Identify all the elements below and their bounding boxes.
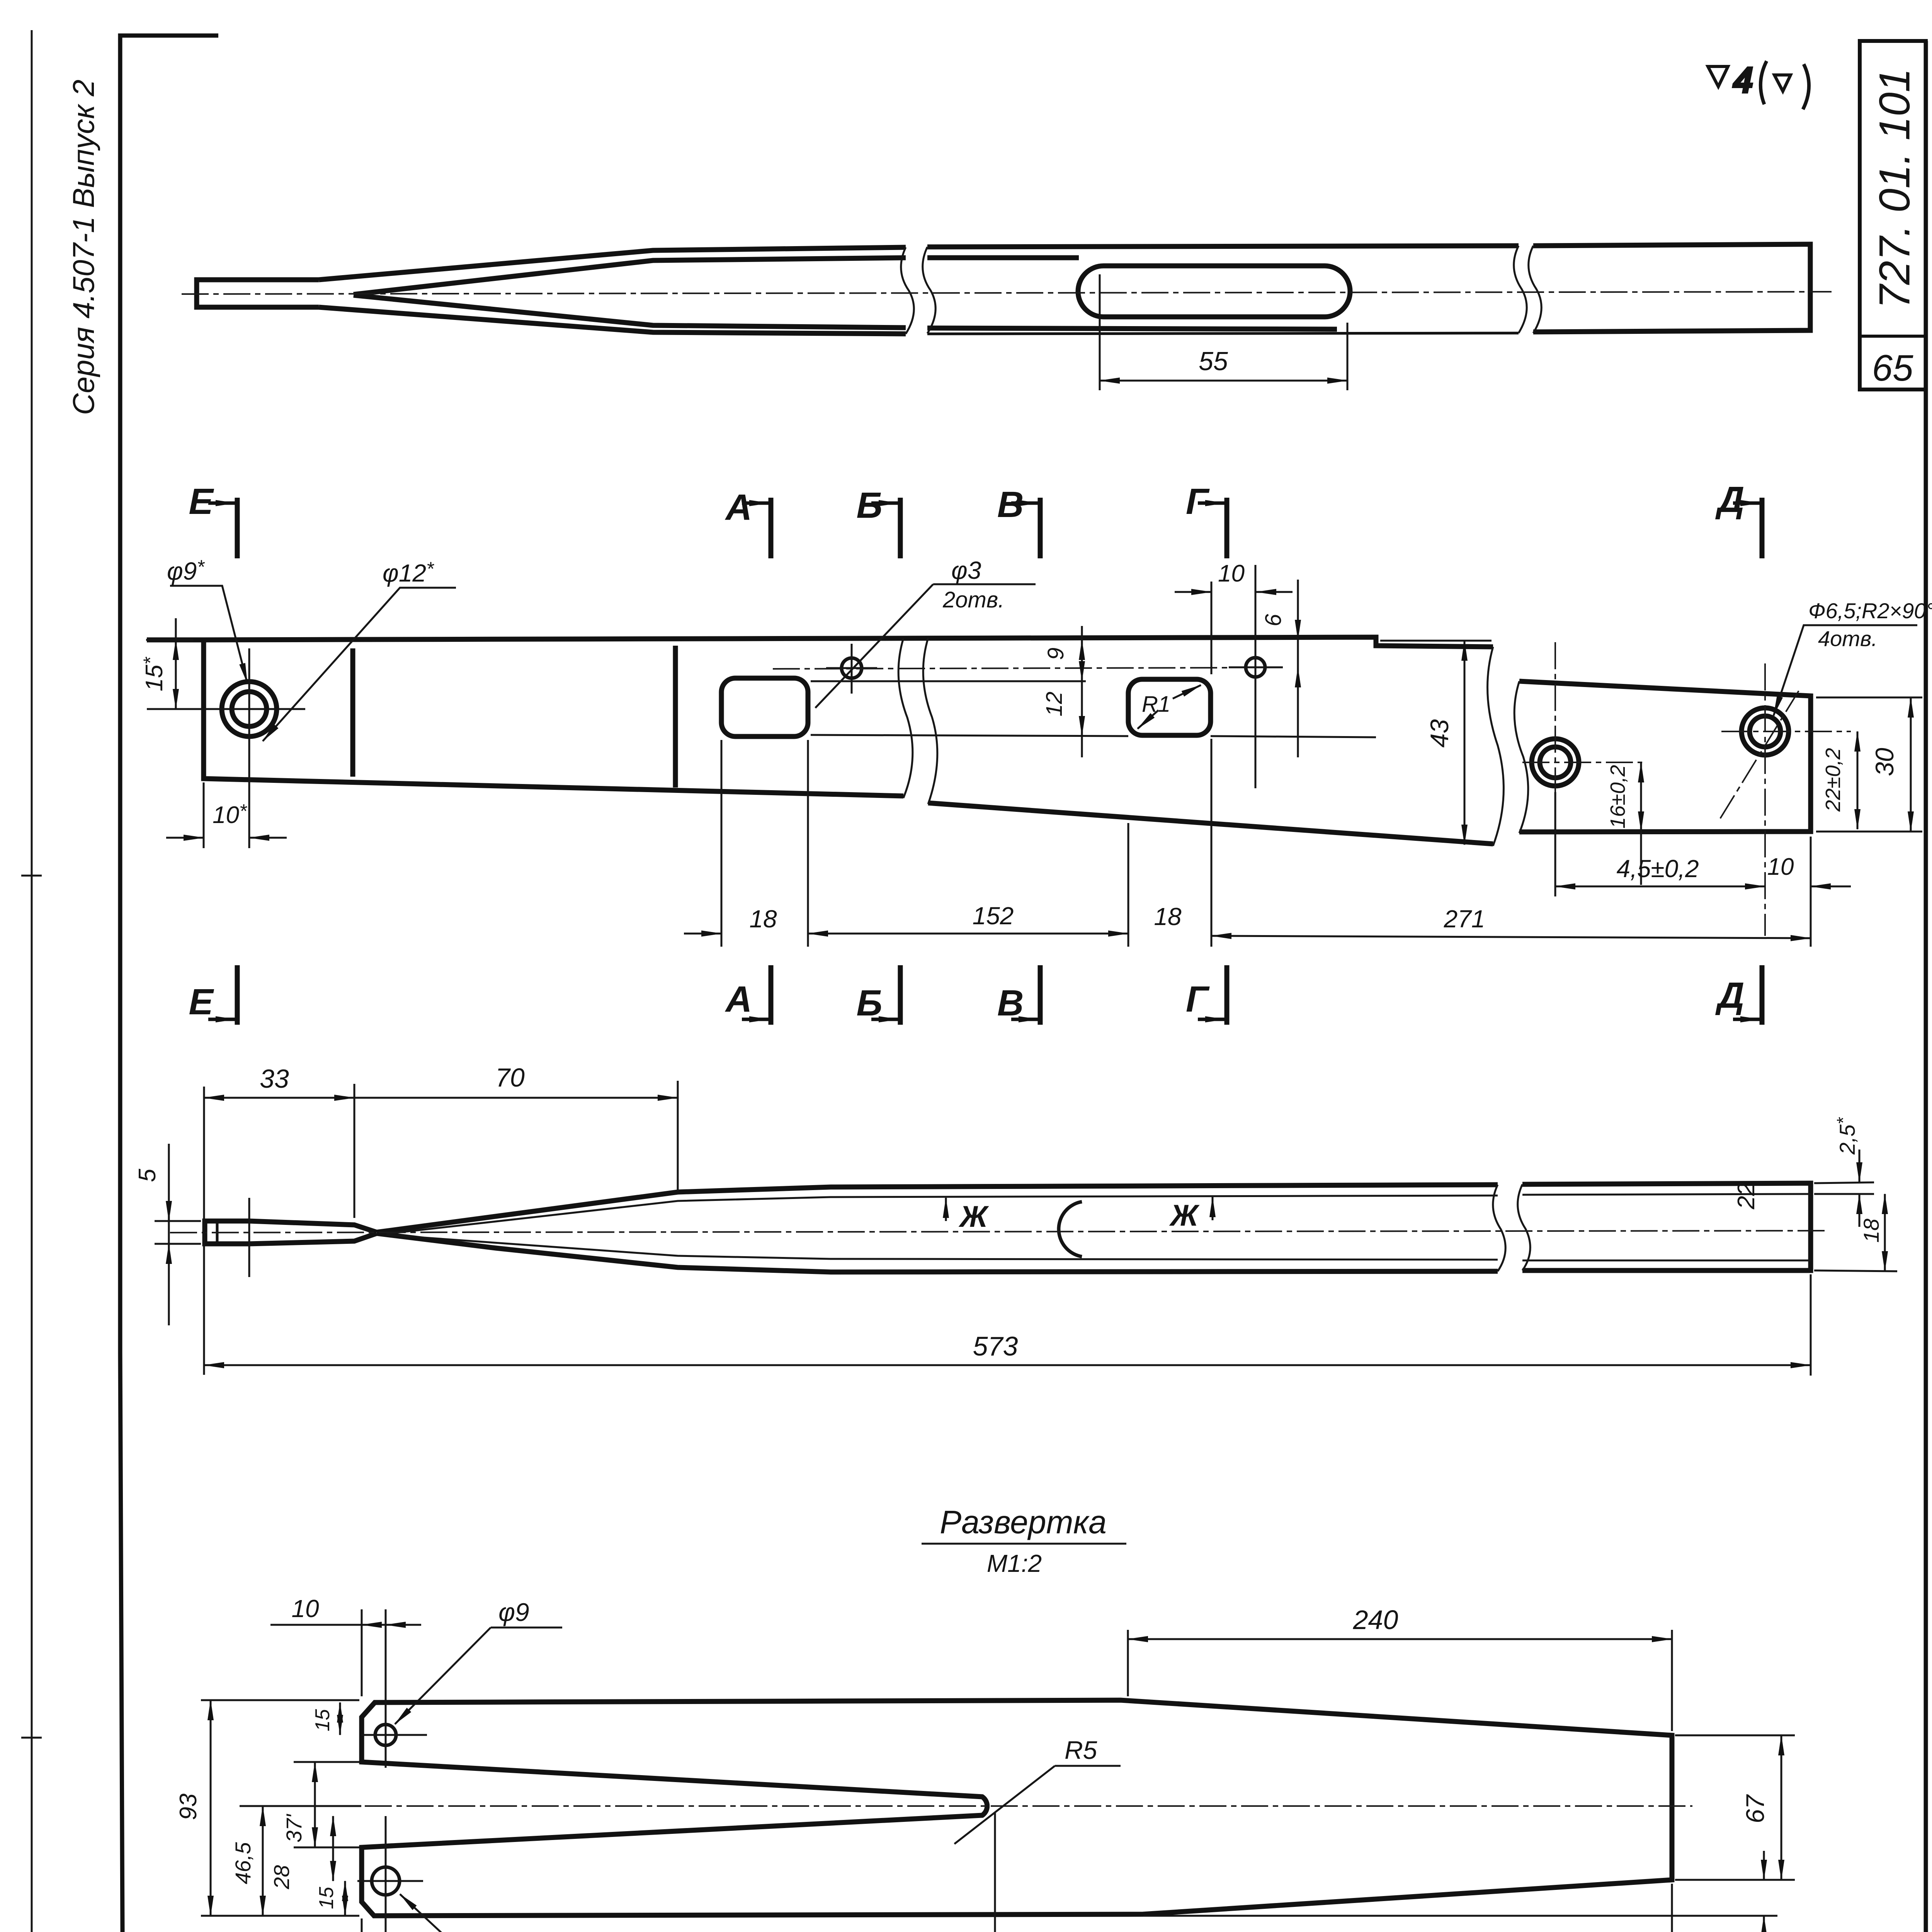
svg-text:Б: Б (856, 485, 882, 526)
svg-text:67: 67 (1741, 1794, 1769, 1823)
svg-text:15: 15 (315, 1886, 338, 1909)
svg-text:18: 18 (1154, 903, 1182, 930)
svg-text:43: 43 (1425, 719, 1454, 748)
svg-text:Е: Е (189, 981, 214, 1022)
svg-text:12: 12 (1042, 692, 1067, 717)
svg-text:Ж: Ж (958, 1199, 989, 1233)
svg-text:33: 33 (260, 1064, 289, 1094)
svg-text:φ3: φ3 (951, 556, 981, 584)
svg-text:65: 65 (1872, 347, 1913, 389)
svg-text:Серия 4.507-1 Выпуск 2: Серия 4.507-1 Выпуск 2 (66, 80, 100, 415)
svg-text:10: 10 (1218, 560, 1245, 587)
svg-text:М1:2: М1:2 (987, 1549, 1042, 1577)
svg-text:В: В (997, 983, 1024, 1024)
svg-text:70: 70 (495, 1063, 525, 1092)
svg-text:9: 9 (1043, 648, 1068, 660)
svg-text:Г: Г (1186, 979, 1210, 1020)
svg-text:28: 28 (269, 1865, 294, 1889)
svg-text:240: 240 (1353, 1605, 1398, 1635)
svg-text:30: 30 (1870, 748, 1899, 776)
svg-text:А: А (725, 979, 752, 1020)
svg-text:46,5: 46,5 (231, 1842, 255, 1884)
svg-text:18: 18 (749, 905, 777, 933)
svg-text:10: 10 (1767, 854, 1794, 880)
svg-text:Б: Б (856, 983, 882, 1024)
svg-text:В: В (997, 484, 1024, 525)
svg-text:Е: Е (189, 481, 214, 522)
svg-text:4: 4 (1733, 61, 1753, 100)
svg-text:55: 55 (1199, 347, 1228, 376)
svg-text:Г: Г (1186, 481, 1210, 522)
svg-text:2отв.: 2отв. (942, 587, 1004, 612)
svg-text:152: 152 (973, 902, 1014, 930)
svg-text:5: 5 (134, 1168, 161, 1182)
svg-text:Ж: Ж (1169, 1198, 1200, 1232)
svg-text:22±0,2: 22±0,2 (1821, 748, 1845, 812)
svg-text:Развертка: Развертка (940, 1504, 1107, 1540)
svg-text:10: 10 (291, 1595, 319, 1622)
svg-text:15: 15 (311, 1709, 334, 1731)
svg-text:18: 18 (1859, 1219, 1883, 1243)
svg-text:φ9: φ9 (498, 1598, 529, 1626)
svg-text:22: 22 (1733, 1183, 1760, 1210)
svg-text:271: 271 (1444, 905, 1485, 933)
svg-text:93: 93 (175, 1794, 202, 1820)
svg-text:4,5±0,2: 4,5±0,2 (1616, 855, 1699, 883)
svg-text:Д: Д (1715, 975, 1745, 1016)
svg-text:16±0,2: 16±0,2 (1606, 765, 1629, 829)
svg-text:R5: R5 (1065, 1736, 1097, 1764)
svg-text:6: 6 (1261, 614, 1286, 626)
svg-text:727. 01. 101: 727. 01. 101 (1871, 68, 1919, 309)
svg-text:37': 37' (282, 1813, 306, 1842)
svg-text:Д: Д (1715, 479, 1745, 520)
svg-text:4отв.: 4отв. (1818, 626, 1878, 651)
svg-text:Ф6,5;R2×90°: Ф6,5;R2×90° (1808, 599, 1932, 623)
svg-text:А: А (725, 487, 752, 528)
svg-text:573: 573 (973, 1331, 1018, 1361)
